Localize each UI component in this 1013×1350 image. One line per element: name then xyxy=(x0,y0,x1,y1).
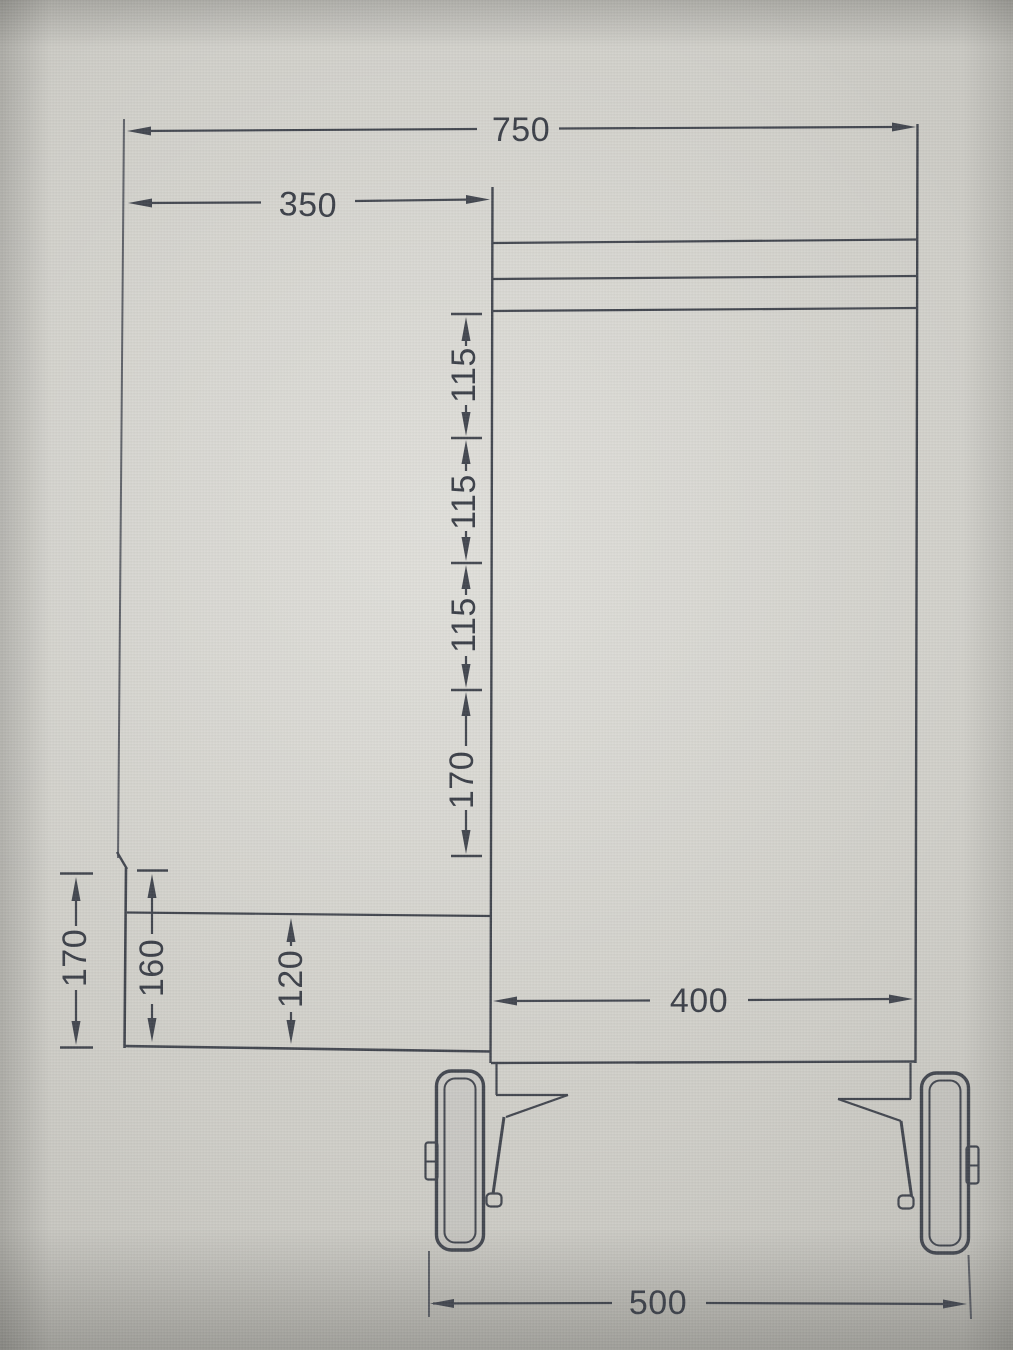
dimension-line xyxy=(706,1303,944,1304)
bracket-diagonal xyxy=(506,1095,568,1117)
bracket-leg xyxy=(493,1117,504,1194)
arrowhead-down xyxy=(72,1021,81,1045)
bracket-foot xyxy=(487,1194,502,1207)
dim-160-label: 160 xyxy=(133,939,171,997)
arrowhead-left xyxy=(128,199,152,208)
dimension-line xyxy=(433,1303,612,1304)
arrowhead-down xyxy=(462,412,471,436)
arrowhead-right xyxy=(892,123,916,132)
dim-115-label-3: 115 xyxy=(445,597,483,653)
arrowhead-left xyxy=(127,127,151,136)
dim-350-label: 350 xyxy=(278,185,338,225)
dim-400-label: 400 xyxy=(670,982,728,1020)
arrowhead-up xyxy=(462,692,471,716)
arrowhead-right xyxy=(889,995,913,1004)
arrowhead-right xyxy=(466,195,490,204)
cart-body xyxy=(491,124,918,1063)
arrowhead-left xyxy=(430,1299,454,1308)
dim-350: 350 xyxy=(128,185,490,225)
arrowhead-left xyxy=(493,997,517,1006)
dimension-line xyxy=(140,129,477,131)
arrowhead-up xyxy=(462,317,471,341)
dim-120-label: 120 xyxy=(272,950,310,1008)
dim-750-label: 750 xyxy=(492,111,550,149)
bracket-leg xyxy=(901,1121,912,1196)
body-top-line-3 xyxy=(492,308,917,311)
bracket-foot xyxy=(899,1196,914,1209)
dim-750: 750 xyxy=(127,111,916,149)
dimension-line xyxy=(559,127,895,129)
dimension-drawing: 750 350 115 xyxy=(0,0,1013,1350)
arrowhead-up xyxy=(462,565,471,589)
dim-120: 120 xyxy=(272,918,310,1044)
body-top-line-2 xyxy=(493,276,917,279)
arrowhead-down xyxy=(148,1018,157,1042)
arrowhead-down xyxy=(462,537,471,561)
dimension-line xyxy=(355,200,477,202)
arrowhead-up xyxy=(148,874,157,898)
shelf-top-rail xyxy=(127,913,491,917)
extension-line-left xyxy=(118,119,124,858)
dimension-line xyxy=(140,203,261,204)
dim-170-left: 170 xyxy=(56,874,94,1048)
dim-400: 400 xyxy=(493,982,913,1020)
handle-jog-line xyxy=(117,852,127,869)
arrowhead-right xyxy=(943,1300,967,1309)
dim-115-label-1: 115 xyxy=(445,347,483,403)
dim-500-label: 500 xyxy=(629,1284,687,1322)
arrowhead-down xyxy=(462,830,471,854)
arrowhead-down xyxy=(287,1020,296,1044)
dim-170-left-label: 170 xyxy=(56,929,94,987)
dim-160: 160 xyxy=(133,871,171,1043)
drawer-pitch-chain: 115 115 115 170 xyxy=(443,314,483,856)
arrowhead-down xyxy=(462,664,471,688)
arrowhead-up xyxy=(287,918,296,942)
dimension-line xyxy=(748,999,891,1000)
dim-500: 500 xyxy=(429,1251,971,1322)
right-caster xyxy=(838,1063,979,1253)
shelf-left-edge xyxy=(125,868,127,1048)
arrowhead-up xyxy=(72,877,81,901)
body-left-edge xyxy=(491,187,493,1063)
body-top-line-1 xyxy=(493,240,917,244)
shelf-bottom-rail xyxy=(124,1046,490,1052)
photographed-page: 750 350 115 xyxy=(0,0,1013,1350)
body-bottom-edge xyxy=(491,1062,916,1064)
arrowhead-up xyxy=(462,440,471,464)
bracket-diagonal xyxy=(838,1099,901,1121)
dimension-line xyxy=(504,1001,650,1002)
body-right-edge xyxy=(916,124,918,1063)
left-caster xyxy=(426,1063,569,1250)
dim-115-label-2: 115 xyxy=(445,474,483,530)
dim-170-chain-label: 170 xyxy=(443,751,481,809)
extension-line-wheel-right xyxy=(969,1255,972,1319)
